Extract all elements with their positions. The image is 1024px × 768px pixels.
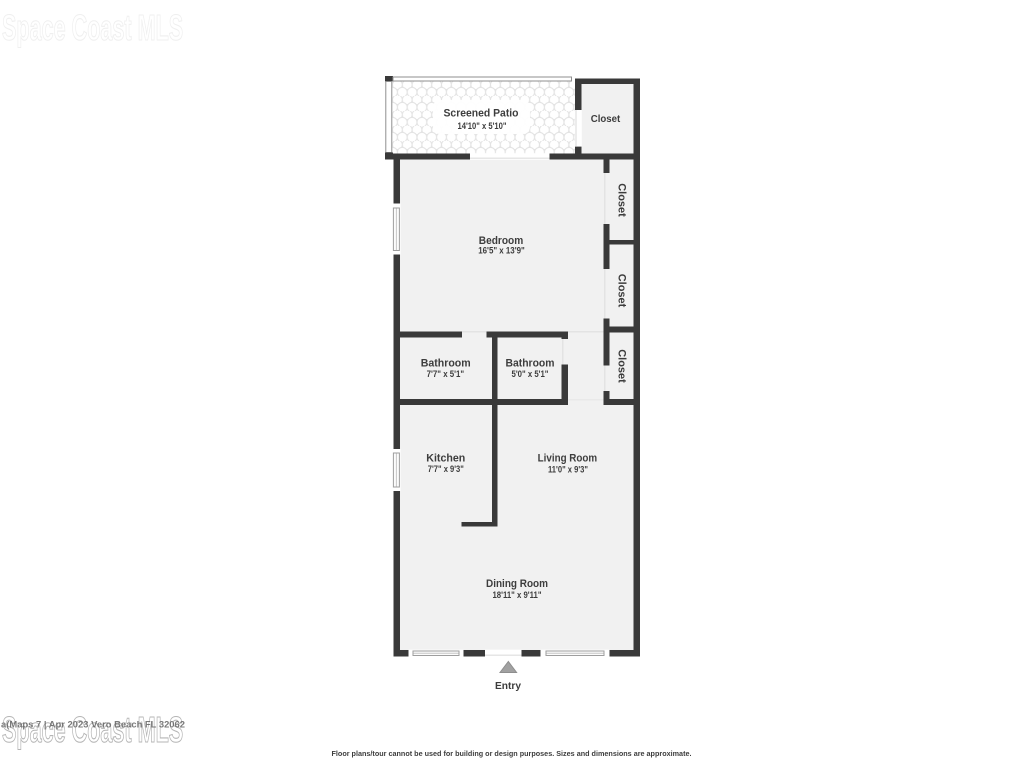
- svg-text:16'5" x 13'9": 16'5" x 13'9": [478, 245, 525, 255]
- svg-text:Closet: Closet: [616, 274, 628, 308]
- svg-text:7'7" x 9'3": 7'7" x 9'3": [428, 464, 464, 474]
- svg-text:a(Maps 7 | Apr 2023 Vero Beach: a(Maps 7 | Apr 2023 Vero Beach FL 32062: [1, 720, 185, 731]
- svg-text:Living Room: Living Room: [538, 453, 598, 465]
- svg-text:Closet: Closet: [616, 183, 628, 217]
- svg-text:Screened Patio: Screened Patio: [444, 108, 519, 120]
- svg-text:Bathroom: Bathroom: [506, 358, 555, 370]
- svg-text:Bathroom: Bathroom: [421, 358, 471, 370]
- svg-text:5'0" x 5'1": 5'0" x 5'1": [512, 369, 549, 379]
- svg-text:Floor plans/tour cannot be use: Floor plans/tour cannot be used for buil…: [332, 749, 692, 758]
- svg-text:7'7" x 5'1": 7'7" x 5'1": [427, 369, 465, 379]
- svg-text:Space Coast MLS: Space Coast MLS: [2, 8, 183, 48]
- svg-text:Closet: Closet: [591, 114, 621, 125]
- svg-text:11'0" x 9'3": 11'0" x 9'3": [548, 464, 588, 474]
- svg-text:14'10" x 5'10": 14'10" x 5'10": [458, 121, 507, 131]
- svg-text:Kitchen: Kitchen: [426, 453, 465, 465]
- svg-text:Entry: Entry: [495, 681, 521, 692]
- svg-text:Dining Room: Dining Room: [486, 578, 548, 590]
- svg-text:Closet: Closet: [616, 349, 628, 383]
- svg-text:18'11" x 9'11": 18'11" x 9'11": [493, 590, 542, 600]
